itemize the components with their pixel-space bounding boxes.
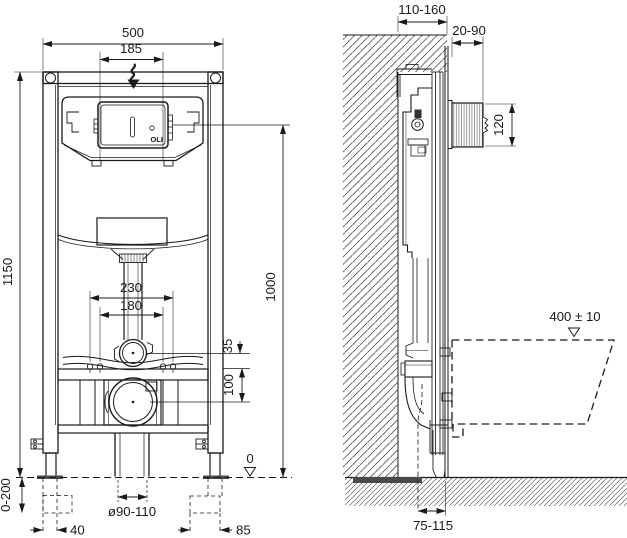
svg-text:185: 185 — [120, 41, 142, 56]
dim-rail-to-drain: 100 — [150, 369, 250, 403]
foot-plate-side — [353, 477, 422, 483]
flush-direction-arrow-icon — [128, 64, 140, 89]
cistern — [62, 97, 203, 166]
svg-text:40: 40 — [70, 523, 85, 538]
dim-foot-plate-length: 85 — [178, 523, 251, 538]
dim-height-overall: 1150 — [0, 72, 42, 477]
side-view: 110-160 20-90 120 400 ± 10 75-115 — [343, 2, 627, 533]
svg-text:0-200: 0-200 — [0, 478, 13, 512]
anchor-bracket-left — [31, 439, 43, 449]
wall-section — [343, 35, 447, 478]
svg-text:1150: 1150 — [0, 258, 15, 286]
dim-flush-unit-height: 1000 — [173, 125, 290, 477]
toilet-bowl-outline — [452, 340, 614, 437]
foot-left — [46, 453, 56, 477]
hanger-hole-right — [211, 73, 221, 83]
svg-text:35: 35 — [220, 339, 235, 354]
technical-drawing-cistern-frame: OLI — [0, 0, 627, 538]
floor-section — [345, 477, 627, 506]
drain-assembly — [80, 378, 178, 477]
front-view: OLI — [0, 25, 292, 538]
flush-pipe-profile — [401, 258, 432, 377]
hanger-hole-left — [46, 73, 56, 83]
dim-wall-finish-depth: 20-90 — [452, 23, 486, 101]
anchor-bracket-right — [196, 439, 208, 449]
push-rod-slot — [131, 117, 135, 137]
svg-text:0: 0 — [246, 451, 253, 466]
dim-bowl-top-height: 400 ± 10 — [549, 309, 600, 337]
svg-text:100: 100 — [221, 374, 236, 396]
foot-right — [210, 453, 220, 477]
drawing-canvas: OLI — [0, 0, 627, 538]
svg-text:110-160: 110-160 — [398, 2, 445, 17]
brand-logo: OLI — [150, 135, 163, 144]
svg-text:ø90-110: ø90-110 — [108, 504, 156, 519]
side-hook-right — [187, 112, 199, 132]
flush-pipe — [59, 218, 208, 373]
fixing-bolts — [87, 364, 175, 373]
svg-text:85: 85 — [236, 523, 251, 538]
cistern-profile — [403, 88, 432, 258]
dim-bolts-outer: 230 — [90, 280, 173, 362]
flush-box-side — [448, 101, 488, 149]
side-hook-left — [67, 112, 79, 132]
svg-text:75-115: 75-115 — [413, 518, 453, 533]
dim-access-box-height: 120 — [485, 104, 516, 146]
svg-text:500: 500 — [122, 25, 144, 40]
frame-profile — [397, 46, 452, 511]
svg-text:1000: 1000 — [263, 272, 278, 301]
svg-text:400 ± 10: 400 ± 10 — [549, 309, 600, 324]
dim-bolts-inner: 180 — [100, 298, 163, 362]
svg-text:120: 120 — [491, 114, 506, 136]
top-anchor-bracket — [397, 65, 432, 98]
floor-level-marker: 0 — [245, 451, 256, 476]
svg-text:230: 230 — [120, 280, 142, 295]
bowl-fixing-details — [440, 348, 452, 428]
svg-text:180: 180 — [120, 298, 142, 313]
svg-text:20-90: 20-90 — [452, 23, 486, 38]
flush-plate-box: OLI — [94, 102, 173, 148]
dim-drain-diameter: ø90-110 — [108, 497, 156, 519]
valve-housing — [97, 218, 167, 245]
dim-leg-adjustment: 0-200 — [0, 478, 22, 513]
dim-frame-depth: 110-160 — [398, 2, 447, 34]
